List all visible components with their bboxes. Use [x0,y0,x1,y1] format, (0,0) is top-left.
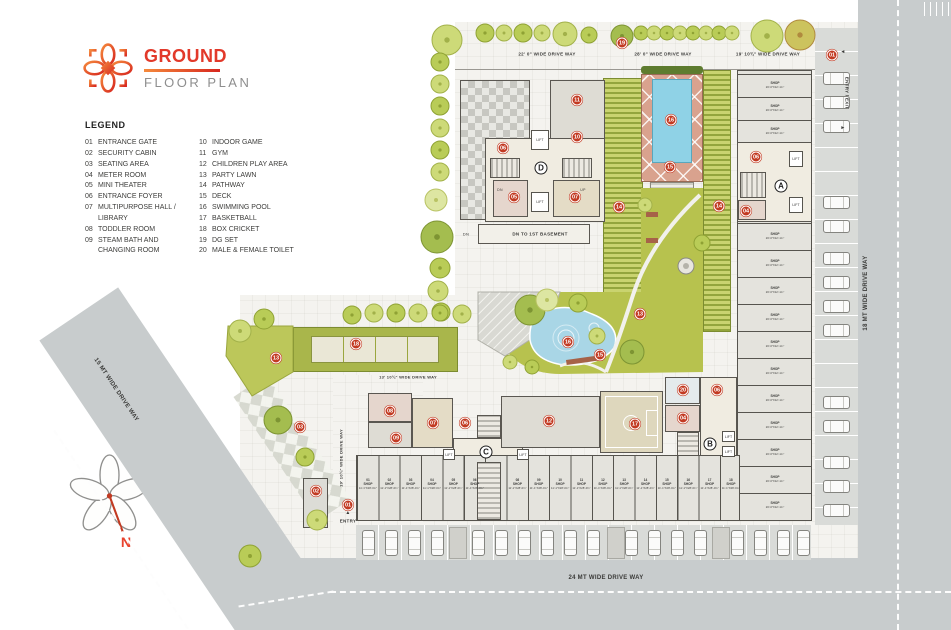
car-icon [823,276,850,289]
car-icon [694,530,707,556]
building-letter-d: D [535,162,548,175]
lift-box: LIFT [722,446,735,457]
shop-unit-label: SHOP20'-0"X12'-1¾" [745,421,805,429]
tree-icon [430,258,450,278]
plan-text: 13' 10¾" WIDE DRIVE WAY [379,375,437,380]
plan-text: 18 MT WIDE DRIVE WAY [863,255,869,330]
car-icon [625,530,638,556]
stairs [490,158,520,178]
tree-center-icon [436,289,440,293]
shop-unit-label: SHOP20'-0"X12'-1¾" [745,259,805,267]
plan-marker-07: 07 [428,418,439,429]
shop-unit-label: SHOP20'-0"X12'-1¾" [745,340,805,348]
pool-steps [650,182,694,190]
shop-unit-label: SHOP20'-0"X12'-1¾" [745,501,805,509]
car-icon [564,530,577,556]
car-icon [431,530,444,556]
shop-unit-label: SHOP20'-0"X12'-1¾" [745,367,805,375]
tree-icon [431,141,449,159]
plan-marker-06: 06 [460,418,471,429]
shop-unit-label: SHOP20'-0"X12'-1¾" [745,313,805,321]
plan-text: ▲ [345,510,350,516]
plan-marker-14: 14 [614,202,625,213]
plan-text: 28' 0" WIDE DRIVE WAY [634,52,691,57]
road-south [240,558,951,630]
tree-center-icon [434,234,440,240]
planter [607,527,625,559]
plan-marker-14: 14 [714,201,725,212]
road-east [858,0,951,630]
shop-unit-label: 13SHOP11'-1"X28'-0¾" [613,478,635,490]
car-icon [823,220,850,233]
planter [712,527,730,559]
shop-unit-label: 06SHOP11'-1"X28'-0¾" [464,478,486,490]
planter [449,527,467,559]
plan-marker-15: 15 [595,350,606,361]
hedge-row [641,66,703,74]
tree-center-icon [444,37,449,42]
car-icon [518,530,531,556]
lift-box: LIFT [531,192,549,212]
plan-marker-01: 01 [343,500,354,511]
plan-text: ENTRY / EXIT [845,77,850,109]
plan-text: 19' 10¾" WIDE DRIVE WAY [339,429,344,487]
plan-marker-16: 16 [666,115,677,126]
tree-center-icon [438,82,441,85]
tree-center-icon [438,170,441,173]
plan-marker-17: 17 [630,419,641,430]
shop-unit-label: 17SHOP11'-1"X28'-0¾" [699,478,721,490]
stairs-shaft [477,462,501,520]
shop-unit-label: 15SHOP11'-1"X28'-0¾" [656,478,678,490]
car-icon [671,530,684,556]
car-icon [823,504,850,517]
tree-icon [425,189,447,211]
tree-icon [431,119,449,137]
top-driveway [455,22,858,70]
tree-icon [431,53,449,71]
plan-marker-08: 08 [385,406,396,417]
lift-box: LIFT [517,449,529,460]
plan-text: DN [497,188,503,192]
plan-marker-13: 13 [635,309,646,320]
tree-center-icon [434,198,438,202]
shop-unit-label: 14SHOP11'-1"X28'-0¾" [635,478,657,490]
lift-box: LIFT [443,449,455,460]
tree-icon [431,97,449,115]
plan-text: ENTRY [340,519,357,524]
car-icon [823,120,850,133]
car-icon [587,530,600,556]
plan-text: DN TO 1ST BASEMENT [512,232,567,237]
plan-marker-16: 16 [563,337,574,348]
stairs [740,172,766,198]
shop-unit-label: 09SHOP11'-1"X28'-0¾" [528,478,550,490]
car-icon [777,530,790,556]
car-icon [495,530,508,556]
shop-unit-label: 12SHOP11'-1"X28'-0¾" [592,478,614,490]
plan-text: 24 MT WIDE DRIVE WAY [568,575,643,581]
plan-marker-04: 04 [678,413,689,424]
shop-unit-label: SHOP20'-0"X12'-1¾" [745,448,805,456]
shop-unit-label: SHOP20'-0"X12'-1¾" [745,127,805,135]
car-icon [408,530,421,556]
shop-unit-label: 02SHOP11'-1"X28'-0¾" [378,478,400,490]
plan-marker-15: 15 [665,162,676,173]
plan-marker-10: 10 [572,132,583,143]
car-icon [385,530,398,556]
tree-center-icon [438,60,441,63]
plan-marker-20: 20 [678,385,689,396]
plan-marker-06: 06 [712,385,723,396]
shop-unit-label: SHOP20'-0"X12'-1¾" [745,475,805,483]
tree-center-icon [438,104,441,107]
road-centerline-east [897,0,899,630]
plan-marker-19: 19 [617,38,628,49]
shop-unit-label: 10SHOP11'-1"X28'-0¾" [549,478,571,490]
tree-icon [431,163,449,181]
shop-unit-label: SHOP20'-0"X12'-1¾" [745,104,805,112]
plan-text: 19' 10¾" WIDE DRIVE WAY [736,52,800,57]
plan-marker-06: 06 [498,143,509,154]
site-plan: 22' 0" WIDE DRIVE WAY28' 0" WIDE DRIVE W… [0,0,951,630]
shop-unit-label: SHOP20'-0"X12'-1¾" [745,286,805,294]
plan-marker-11: 11 [572,95,583,106]
plan-marker-07: 07 [570,192,581,203]
plan-text: UP [580,188,585,192]
car-icon [823,420,850,433]
plan-marker-02: 02 [311,486,322,497]
shop-unit-label: 18SHOP11'-1"X28'-0¾" [720,478,742,490]
car-icon [823,196,850,209]
plan-marker-18: 18 [351,339,362,350]
car-icon [797,530,810,556]
plan-marker-13: 13 [271,353,282,364]
shop-unit-label: SHOP20'-0"X12'-1¾" [745,81,805,89]
car-icon [541,530,554,556]
shop-unit-label: 04SHOP11'-1"X28'-0¾" [421,478,443,490]
shop-unit-label: 01SHOP11'-1"X28'-0¾" [357,478,379,490]
tree-center-icon [438,148,441,151]
shop-unit-label: 16SHOP11'-1"X28'-0¾" [677,478,699,490]
building-letter-b: B [704,438,717,451]
car-icon [754,530,767,556]
plan-marker-05: 05 [509,192,520,203]
lift-box: LIFT [789,151,803,167]
shop-unit-label: SHOP20'-0"X12'-1¾" [745,394,805,402]
stairs [477,415,501,438]
plan-marker-06: 06 [751,152,762,163]
shop-unit-label: 08SHOP11'-1"X28'-0¾" [506,478,528,490]
plan-text: 22' 0" WIDE DRIVE WAY [518,52,575,57]
shop-unit-label: 11SHOP11'-1"X28'-0¾" [571,478,593,490]
tree-center-icon [438,266,442,270]
lift-box: LIFT [789,197,803,213]
shop-unit-label: 05SHOP11'-1"X28'-0¾" [442,478,464,490]
plan-text: ◄ [840,49,845,55]
car-icon [731,530,744,556]
lift-box: LIFT [531,130,549,150]
car-icon [648,530,661,556]
plan-marker-01: 01 [827,50,838,61]
plan-text: DN [463,232,469,237]
tree-center-icon [438,126,441,129]
car-icon [823,324,850,337]
plan-marker-12: 12 [544,416,555,427]
floor-plan-page: GROUND FLOOR PLAN LEGEND 01ENTRANCE GATE… [0,0,951,630]
car-icon [472,530,485,556]
plan-marker-04: 04 [741,206,752,217]
tree-icon [421,221,453,253]
building-letter-c: C [480,446,493,459]
lift-box: LIFT [722,431,735,442]
building-letter-a: A [775,180,788,193]
plan-text: ► [840,125,845,131]
court-key [646,410,658,436]
road-corner-stalls [924,2,950,16]
plan-marker-09: 09 [391,433,402,444]
car-icon [823,480,850,493]
plan-marker-03: 03 [295,422,306,433]
car-icon [823,252,850,265]
box-cricket-court [311,336,439,363]
car-icon [823,396,850,409]
car-icon [362,530,375,556]
road-centerline-south [330,591,951,593]
shop-unit-label: SHOP20'-0"X12'-1¾" [745,232,805,240]
car-icon [823,300,850,313]
car-icon [823,456,850,469]
stairs [562,158,592,178]
tree-icon [431,75,449,93]
shop-unit-label: 03SHOP11'-1"X28'-0¾" [400,478,422,490]
